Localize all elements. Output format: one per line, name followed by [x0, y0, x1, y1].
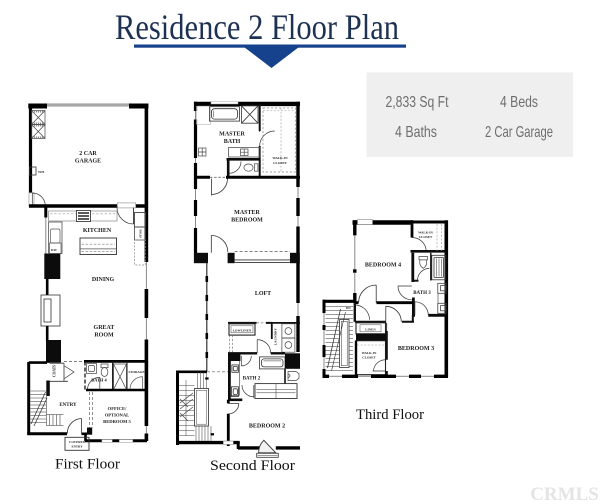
svg-text:STORAGE: STORAGE [128, 370, 145, 374]
svg-text:COATS: COATS [53, 365, 57, 377]
svg-text:BEDROOM 2: BEDROOM 2 [249, 424, 285, 430]
svg-text:BATH 3: BATH 3 [413, 291, 431, 296]
svg-text:BEDROOM: BEDROOM [231, 218, 263, 224]
svg-text:DN: DN [346, 306, 351, 310]
svg-text:MASTER: MASTER [219, 132, 245, 138]
svg-text:BEDROOM 5: BEDROOM 5 [103, 419, 131, 424]
svg-text:BATH 2: BATH 2 [243, 376, 261, 381]
svg-text:BATH: BATH [224, 139, 241, 145]
svg-text:BEDROOM 3: BEDROOM 3 [398, 346, 434, 352]
svg-text:LOFT: LOFT [255, 291, 271, 297]
svg-text:LAUNDRY: LAUNDRY [274, 328, 278, 346]
svg-text:First Floor: First Floor [55, 457, 120, 473]
svg-text:DW: DW [51, 248, 57, 252]
svg-text:ROOM: ROOM [94, 333, 114, 339]
svg-text:LINEN: LINEN [365, 327, 376, 331]
svg-text:WALK-IN: WALK-IN [362, 351, 377, 355]
svg-text:DINING: DINING [92, 277, 115, 283]
svg-text:GARAGE: GARAGE [75, 159, 101, 165]
svg-text:OFFICE/: OFFICE/ [108, 406, 127, 411]
svg-text:CRMLS: CRMLS [530, 484, 599, 504]
svg-text:KITCHEN: KITCHEN [83, 228, 112, 234]
svg-text:2 CAR: 2 CAR [79, 151, 97, 157]
svg-text:CLOSET: CLOSET [362, 356, 376, 360]
svg-text:BEDROOM 4: BEDROOM 4 [365, 263, 401, 269]
svg-text:WALK-IN: WALK-IN [418, 231, 433, 235]
svg-text:WH: WH [38, 170, 44, 174]
svg-text:MASTER: MASTER [234, 210, 260, 216]
svg-text:STOR: STOR [139, 229, 143, 238]
svg-text:BATH 4: BATH 4 [91, 378, 107, 383]
svg-text:4 Beds: 4 Beds [500, 94, 538, 111]
svg-text:COVERED: COVERED [69, 440, 86, 444]
svg-text:CLOSET: CLOSET [419, 235, 433, 239]
svg-text:2,833 Sq Ft: 2,833 Sq Ft [386, 94, 449, 111]
svg-text:CLOSET: CLOSET [273, 161, 287, 165]
svg-text:ENTRY: ENTRY [71, 445, 83, 449]
svg-text:OPTIONAL: OPTIONAL [105, 413, 130, 418]
svg-text:ENTRY: ENTRY [59, 403, 77, 408]
svg-text:4 Baths: 4 Baths [395, 124, 437, 141]
svg-text:Residence 2 Floor Plan: Residence 2 Floor Plan [115, 7, 399, 47]
svg-text:Third Floor: Third Floor [356, 407, 424, 423]
svg-text:LOWLINEN: LOWLINEN [233, 328, 252, 332]
svg-text:2 Car Garage: 2 Car Garage [485, 124, 553, 141]
svg-text:GREAT: GREAT [94, 325, 115, 331]
svg-text:WALK-IN: WALK-IN [272, 156, 288, 160]
svg-text:Second Floor: Second Floor [210, 458, 295, 474]
